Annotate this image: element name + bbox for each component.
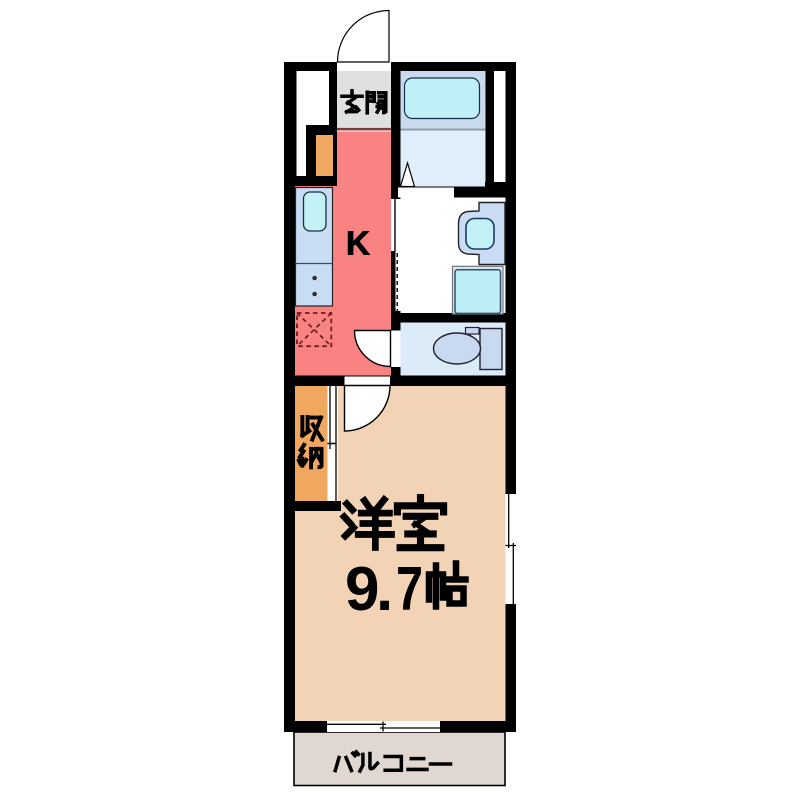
svg-text:7: 7 — [396, 555, 423, 624]
svg-text:K: K — [346, 225, 370, 262]
svg-text:.: . — [376, 555, 393, 624]
svg-text:9: 9 — [345, 555, 379, 624]
